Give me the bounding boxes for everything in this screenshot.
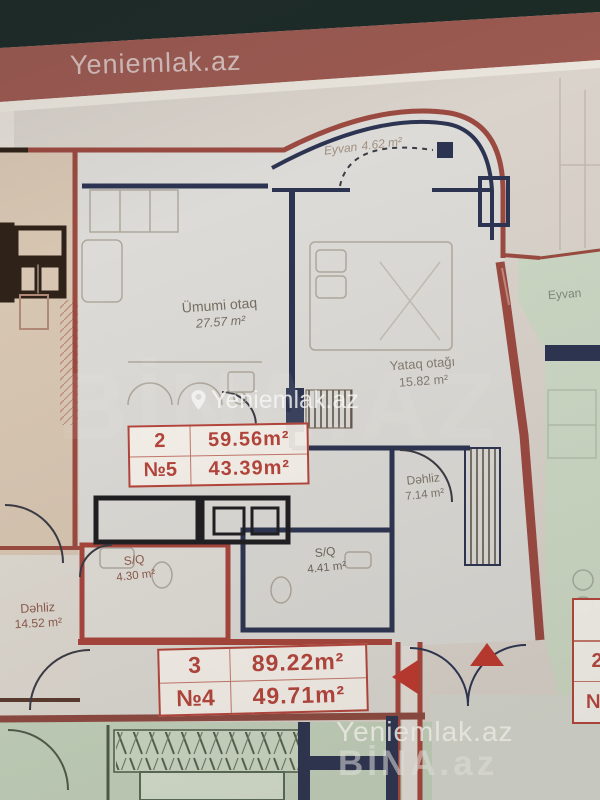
table-cell-area: 59.56m²: [191, 424, 307, 455]
watermark-top: Yeniemlak.az: [70, 46, 242, 81]
table-row: №5 43.39m²: [130, 453, 307, 486]
watermark-center: Yeniemlak.az: [190, 386, 359, 415]
table-cell-area: 43.39m²: [191, 454, 307, 485]
table-cell-number: 3: [159, 649, 231, 682]
table-cell-area: 49.71m²: [231, 678, 367, 713]
watermark-logo-pin-icon: [190, 389, 207, 412]
table-cell-number: 2: [574, 641, 600, 682]
watermark-bottom-brand: BİNA.az: [338, 744, 498, 784]
table-cell-number: №: [574, 681, 600, 722]
room-name: Eyvan: [323, 140, 358, 158]
table-row: №4 49.71m²: [160, 677, 367, 715]
room-area: 4.62 m²: [361, 134, 403, 153]
apartment-3-info-table: 3 89.22m² №4 49.71m²: [157, 643, 369, 716]
apartment-2-info-table: 2 59.56m² №5 43.39m²: [127, 422, 309, 487]
table-row: 2 59.56m²: [130, 424, 307, 456]
floorplan-photo: Yeniemlak.az BİNA.AZ Eyvan 4.62 m² Ümumi…: [0, 0, 600, 800]
table-cell-number: №5: [130, 456, 192, 486]
right-partial-info-table: 2 №: [572, 598, 600, 724]
room-label-dehliz-left: Dəhliz 14.52 m²: [1, 598, 75, 634]
table-cell-number: 2: [130, 426, 192, 456]
table-cell-number: №4: [160, 681, 232, 714]
table-row: [574, 600, 600, 641]
watermark-center-text: Yeniemlak.az: [211, 386, 359, 415]
table-cell-area: 89.22m²: [230, 645, 366, 680]
